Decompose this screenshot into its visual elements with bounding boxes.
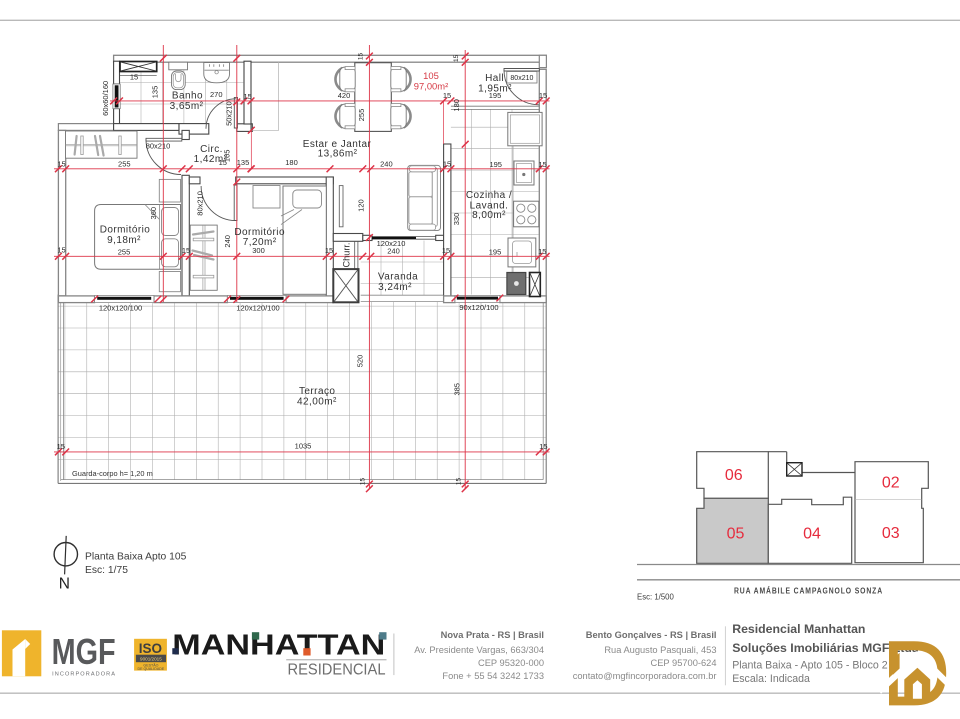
- svg-text:15: 15: [182, 246, 190, 255]
- svg-text:Esc: 1/75: Esc: 1/75: [85, 565, 128, 576]
- svg-text:06: 06: [725, 467, 743, 484]
- svg-text:270: 270: [210, 90, 223, 99]
- svg-text:120x120/100: 120x120/100: [236, 303, 279, 312]
- svg-text:Rua Augusto Pasquali, 453: Rua Augusto Pasquali, 453: [604, 645, 716, 655]
- svg-text:255: 255: [118, 160, 131, 169]
- svg-text:330: 330: [452, 213, 461, 226]
- svg-text:9001/2015: 9001/2015: [140, 657, 162, 662]
- svg-text:90x120/100: 90x120/100: [459, 303, 498, 312]
- svg-text:3,24m²: 3,24m²: [378, 282, 412, 293]
- svg-text:CEP 95700-624: CEP 95700-624: [651, 658, 717, 668]
- svg-text:50x210: 50x210: [225, 101, 234, 126]
- svg-text:255: 255: [118, 248, 131, 257]
- svg-text:15: 15: [57, 246, 65, 255]
- svg-text:Terraço: Terraço: [299, 386, 336, 397]
- svg-text:05: 05: [727, 525, 745, 542]
- svg-text:Bento Gonçalves - RS | Brasil: Bento Gonçalves - RS | Brasil: [586, 630, 717, 640]
- svg-text:15: 15: [57, 442, 65, 451]
- svg-text:15: 15: [57, 159, 65, 168]
- svg-text:1,42m²: 1,42m²: [194, 154, 228, 165]
- svg-text:80x210: 80x210: [146, 141, 171, 150]
- svg-text:15: 15: [453, 54, 460, 62]
- svg-text:CEP 95320-000: CEP 95320-000: [478, 658, 544, 668]
- svg-text:180: 180: [285, 158, 298, 167]
- svg-text:255: 255: [357, 109, 366, 122]
- svg-text:7,20m²: 7,20m²: [243, 237, 277, 248]
- svg-text:15: 15: [538, 247, 546, 256]
- svg-text:15: 15: [244, 92, 252, 101]
- svg-text:ISO: ISO: [139, 641, 162, 656]
- svg-text:Residencial Manhattan: Residencial Manhattan: [732, 622, 865, 636]
- svg-text:1035: 1035: [295, 442, 312, 451]
- svg-text:Nova Prata - RS | Brasil: Nova Prata - RS | Brasil: [441, 630, 544, 640]
- svg-text:MANHATTAN: MANHATTAN: [172, 629, 385, 661]
- svg-text:15: 15: [442, 246, 450, 255]
- svg-text:RUA AMÁBILE CAMPAGNOLO SONZA: RUA AMÁBILE CAMPAGNOLO SONZA: [734, 587, 883, 596]
- svg-text:Churr.: Churr.: [342, 242, 352, 267]
- svg-text:135: 135: [151, 86, 160, 99]
- svg-text:Fone + 55 54 3242 1733: Fone + 55 54 3242 1733: [442, 671, 544, 681]
- svg-text:120: 120: [357, 199, 366, 212]
- svg-text:240: 240: [380, 159, 393, 168]
- svg-text:240: 240: [223, 235, 232, 248]
- svg-text:15: 15: [357, 53, 364, 61]
- svg-text:195: 195: [489, 247, 502, 256]
- svg-text:Planta Baixa - Apto 105 - Bloc: Planta Baixa - Apto 105 - Bloco 2: [732, 660, 888, 672]
- svg-text:135: 135: [237, 158, 250, 167]
- svg-text:360: 360: [149, 207, 158, 220]
- svg-text:15: 15: [539, 442, 547, 451]
- svg-text:9,18m²: 9,18m²: [107, 235, 141, 246]
- svg-text:60x60/160: 60x60/160: [101, 81, 110, 116]
- svg-text:420: 420: [338, 91, 351, 100]
- svg-text:15: 15: [130, 73, 138, 82]
- svg-text:385: 385: [452, 383, 461, 396]
- svg-text:15: 15: [443, 159, 451, 168]
- svg-text:15: 15: [325, 246, 333, 255]
- svg-text:1,95m²: 1,95m²: [478, 83, 512, 94]
- svg-text:Av. Presidente Vargas, 663/304: Av. Presidente Vargas, 663/304: [414, 645, 544, 655]
- svg-text:3,65m²: 3,65m²: [170, 101, 204, 112]
- svg-text:80x210: 80x210: [195, 191, 204, 216]
- svg-text:97,00m²: 97,00m²: [414, 81, 448, 92]
- svg-text:120x210: 120x210: [377, 239, 406, 248]
- svg-text:15: 15: [538, 160, 546, 169]
- svg-text:42,00m²: 42,00m²: [297, 397, 337, 408]
- svg-text:02: 02: [882, 474, 900, 491]
- svg-text:15: 15: [455, 478, 462, 486]
- svg-text:Varanda: Varanda: [378, 271, 418, 282]
- svg-text:RESIDENCIAL: RESIDENCIAL: [288, 661, 386, 678]
- svg-text:15: 15: [360, 478, 367, 486]
- svg-text:Planta Baixa Apto 105: Planta Baixa Apto 105: [85, 552, 187, 563]
- svg-text:Guarda-corpo h= 1,20 m: Guarda-corpo h= 1,20 m: [72, 469, 153, 478]
- svg-text:13,86m²: 13,86m²: [318, 148, 358, 159]
- svg-text:8,00m²: 8,00m²: [472, 210, 506, 221]
- svg-text:03: 03: [882, 525, 900, 542]
- svg-text:Escala: Indicada: Escala: Indicada: [732, 673, 810, 685]
- svg-text:04: 04: [803, 525, 821, 542]
- svg-text:DE QUALIDADE: DE QUALIDADE: [138, 667, 165, 671]
- svg-text:N: N: [59, 576, 70, 593]
- svg-text:520: 520: [355, 355, 364, 368]
- svg-text:Esc: 1/500: Esc: 1/500: [637, 593, 675, 602]
- svg-text:contato@mgfincorporadora.com.b: contato@mgfincorporadora.com.br: [573, 671, 717, 681]
- svg-text:15: 15: [539, 91, 547, 100]
- svg-text:80x210: 80x210: [510, 75, 533, 82]
- svg-text:195: 195: [489, 160, 502, 169]
- svg-text:105: 105: [423, 70, 439, 81]
- svg-text:Dormitório: Dormitório: [100, 225, 151, 236]
- svg-text:MGF: MGF: [52, 631, 116, 672]
- svg-text:120x120/100: 120x120/100: [99, 303, 142, 312]
- svg-text:INCORPORADORA: INCORPORADORA: [52, 671, 116, 677]
- svg-text:15: 15: [443, 91, 451, 100]
- svg-text:180: 180: [452, 99, 461, 112]
